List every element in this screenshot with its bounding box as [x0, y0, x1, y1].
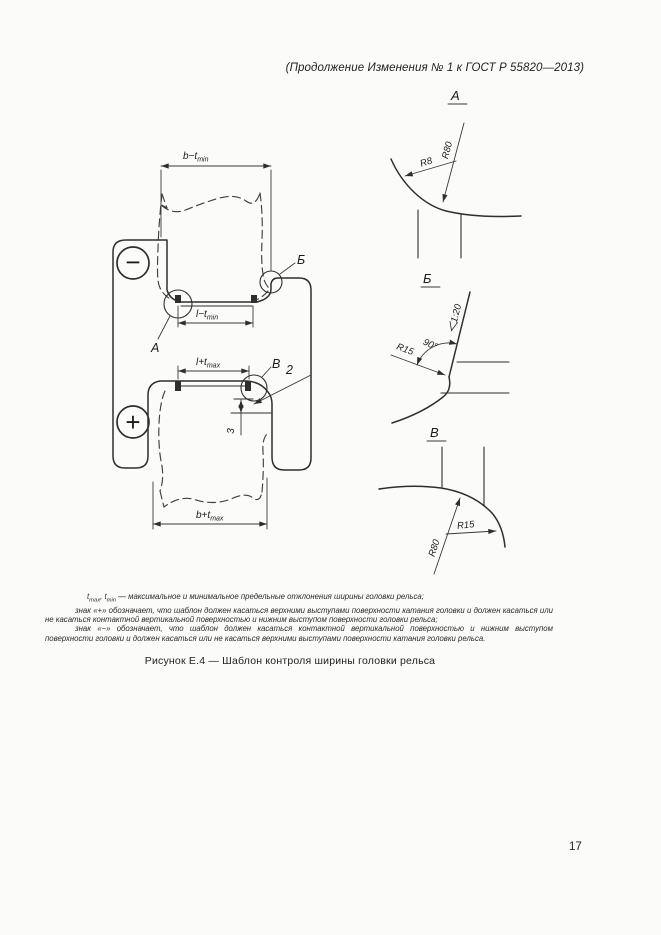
plus-gauge-symbol: + — [117, 406, 149, 438]
detail-callout-b: Б — [260, 253, 305, 293]
dimension-3: 3 — [226, 400, 241, 435]
detail-label-v: В — [272, 357, 280, 371]
view-b-title: Б — [423, 271, 432, 286]
note-line-1: tmax, tmin — максимальное и минимальное … — [45, 592, 553, 606]
minus-gauge-symbol: − — [117, 247, 149, 279]
angle-90-label: 90° — [421, 337, 439, 353]
rail-head-profile-upper — [158, 193, 271, 300]
minus-icon: − — [125, 247, 140, 277]
dimension-b-minus-tmin: b−tmin — [161, 151, 271, 270]
view-v: В R80 R15 — [379, 425, 505, 574]
dimension-l-minus-tmin: l−tmin — [178, 306, 253, 327]
radius-r80-label: R80 — [440, 140, 455, 160]
view-b: Б 90° R15 1:20 — [391, 271, 509, 423]
radius-r15-label: R15 — [456, 519, 475, 532]
detail-label-b: Б — [297, 253, 305, 267]
detail-callout-a: А — [150, 290, 192, 355]
view-v-title: В — [430, 425, 439, 440]
dim-label: b−tmin — [183, 151, 209, 164]
note-line-3: знак «−» обозначает, что шаблон должен к… — [45, 624, 553, 643]
callout-3-label: 3 — [226, 428, 237, 434]
callout-2-label: 2 — [285, 363, 293, 377]
slope-1-20-label: 1:20 — [449, 302, 464, 323]
detail-callout-v: В — [241, 357, 280, 401]
dim-label: l−tmin — [196, 309, 218, 322]
dimension-l-plus-tmax: l+tmax — [178, 357, 249, 379]
figure-e4-drawing: − + А Б В b−tmin — [0, 0, 661, 935]
figure-notes: tmax, tmin — максимальное и минимальное … — [45, 592, 553, 643]
dimension-b-plus-tmax: b+tmax — [153, 478, 267, 529]
dim-label: b+tmax — [196, 510, 224, 523]
view-a: А R80 R8 — [391, 88, 521, 258]
page-number: 17 — [569, 841, 582, 853]
rail-head-profile-lower — [159, 391, 268, 507]
dim-label: l+tmax — [196, 357, 221, 370]
plus-icon: + — [125, 407, 140, 437]
detail-label-a: А — [150, 341, 159, 355]
note-line-2: знак «+» обозначает, что шаблон должен к… — [45, 606, 553, 625]
radius-r8-label: R8 — [419, 155, 435, 169]
view-a-title: А — [450, 88, 460, 103]
document-page: (Продолжение Изменения № 1 к ГОСТ Р 5582… — [0, 0, 661, 935]
radius-r15-label: R15 — [395, 341, 416, 358]
figure-caption: Рисунок Е.4 — Шаблон контроля ширины гол… — [0, 655, 580, 667]
